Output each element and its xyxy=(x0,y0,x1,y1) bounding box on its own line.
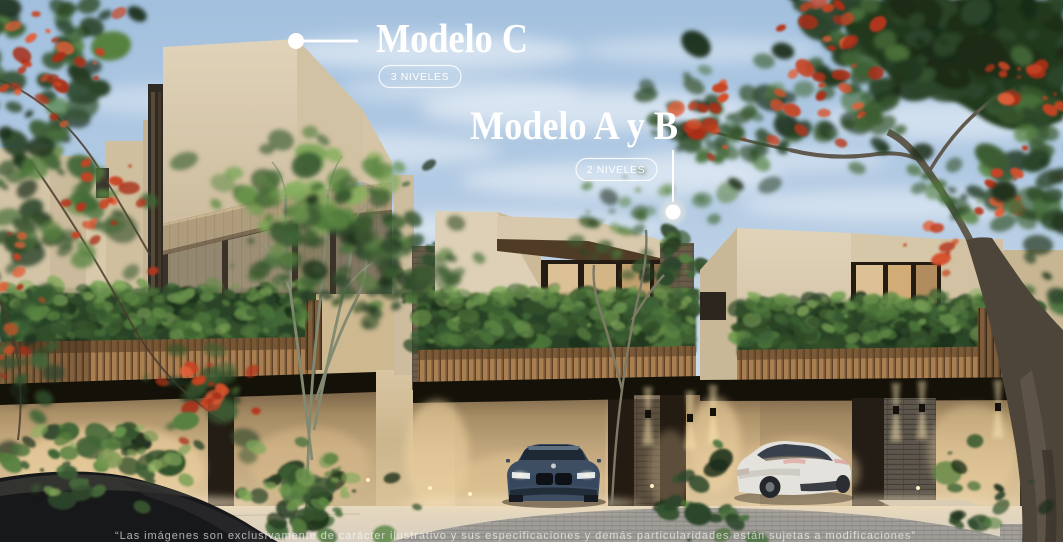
svg-text:Modelo A y B: Modelo A y B xyxy=(470,103,678,148)
svg-text:“Las imágenes son exclusivamen: “Las imágenes son exclusivamente de cará… xyxy=(115,530,915,542)
svg-text:3 NIVELES: 3 NIVELES xyxy=(391,71,450,83)
svg-text:Modelo C: Modelo C xyxy=(376,15,528,61)
svg-text:2 NIVELES: 2 NIVELES xyxy=(587,164,646,176)
